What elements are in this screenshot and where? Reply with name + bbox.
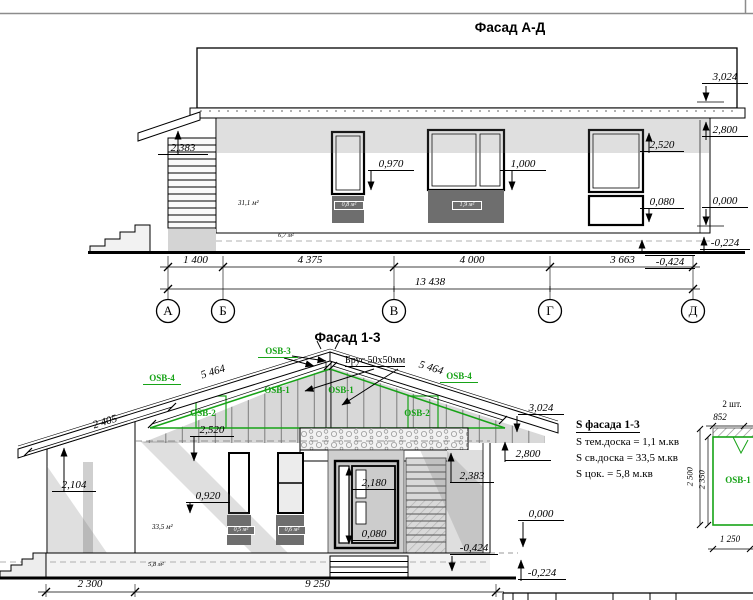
legend-row-1: S тем.доска = 1,1 м.кв	[576, 436, 679, 448]
mark-0000-13: 0,000	[518, 508, 564, 521]
osb4-left-label: OSB-4	[143, 374, 181, 385]
mark-2180-13: 2,180	[352, 477, 396, 490]
mark-2800-13: 2,800	[505, 448, 551, 461]
dim-1400: 1 400	[168, 254, 223, 266]
panel-height-outer: 2 500	[685, 457, 694, 497]
mark-3024-13: 3,024	[518, 402, 564, 415]
eave-shadow-ad	[217, 119, 709, 153]
osb3-label: OSB-3	[258, 347, 298, 358]
axis-bubble-a: А	[157, 304, 179, 318]
area-window1-13: 0,5 м²	[227, 526, 255, 535]
mark-0920-13: 0,920	[186, 490, 230, 503]
mark-2800-ad: 2,800	[702, 124, 748, 137]
mark-2520-ad: 2,520	[640, 139, 684, 152]
area-wall-13: 33,5 м²	[152, 524, 173, 532]
drawing-canvas	[0, 0, 753, 600]
axis-bubbles	[157, 300, 705, 323]
osb1-right-label: OSB-1	[322, 386, 360, 396]
dim-4000: 4 000	[412, 254, 532, 266]
area-plinth-ad: 6,7 м²	[278, 232, 294, 239]
mark-0000-ad: 0,000	[702, 195, 748, 208]
mark-2520-13: 2,520	[190, 424, 234, 437]
osb2-left-label: OSB-2	[184, 409, 222, 419]
osb2-right-label: OSB-2	[398, 409, 436, 419]
panel-count: 2 шт.	[712, 400, 752, 410]
panel-width-top: 852	[700, 413, 740, 423]
mark-1000-ad: 1,000	[500, 158, 546, 171]
brus-note: Брус 50х50мм	[345, 355, 405, 367]
mark-0080-ad: 0,080	[640, 196, 684, 209]
area-window2-ad: 1,9 м²	[452, 201, 482, 210]
osb1-left-label: OSB-1	[258, 386, 296, 396]
panel-width-bottom: 1 250	[708, 535, 752, 545]
area-wall-ad: 31,1 м²	[238, 200, 259, 208]
mark-0080-13: 0,080	[352, 528, 396, 541]
legend-row-3: S цок. = 5,8 м.кв	[576, 468, 653, 480]
legend-title: S фасада 1-3	[576, 419, 640, 433]
mark-neg0224-ad: -0,224	[700, 237, 750, 250]
mark-neg0224-13: -0,224	[518, 567, 566, 580]
mark-2383-ad: 2,383	[158, 142, 208, 155]
mark-2104-13: 2,104	[52, 479, 96, 492]
dim-2300: 2 300	[55, 578, 125, 590]
title-block-table	[503, 593, 753, 600]
area-plinth-13: 5,8 м²	[148, 561, 164, 568]
axis-bubble-b: Б	[212, 304, 234, 318]
mark-neg0424-13: -0,424	[450, 542, 498, 555]
steps-ad	[90, 225, 150, 252]
legend-row-2: S св.доска = 33,5 м.кв	[576, 452, 678, 464]
steps-13-left	[0, 553, 46, 577]
dim-4375: 4 375	[250, 254, 370, 266]
dim-9250: 9 250	[270, 578, 365, 590]
axis-bubble-g: Г	[539, 304, 561, 318]
panel-osb1-label: OSB-1	[718, 476, 753, 486]
axis-bubble-d: Д	[682, 304, 704, 318]
mark-0970-ad: 0,970	[368, 158, 414, 171]
axis-bubble-v: В	[383, 304, 405, 318]
entry-canopy-ad	[138, 112, 200, 141]
area-window1-ad: 0,8 м²	[334, 201, 364, 210]
mark-3024-ad: 3,024	[702, 71, 748, 84]
steps-13-center	[330, 556, 408, 578]
osb4-right-label: OSB-4	[440, 372, 478, 383]
facade-ad-title: Фасад А-Д	[455, 21, 565, 36]
panel-height-inner: 2 350	[697, 460, 706, 500]
area-window2-13: 0,6 м²	[278, 526, 306, 535]
facade-drawing-sheet: Фасад А-Д 2,383 0,970 1,000 2,520 0,080 …	[0, 0, 753, 600]
page-frame	[0, 0, 753, 14]
mark-2383-13: 2,383	[450, 470, 494, 483]
dim-3663: 3 663	[565, 254, 680, 266]
dim-total-13438: 13 438	[380, 276, 480, 288]
facade-13-title: Фасад 1-3	[300, 331, 395, 346]
